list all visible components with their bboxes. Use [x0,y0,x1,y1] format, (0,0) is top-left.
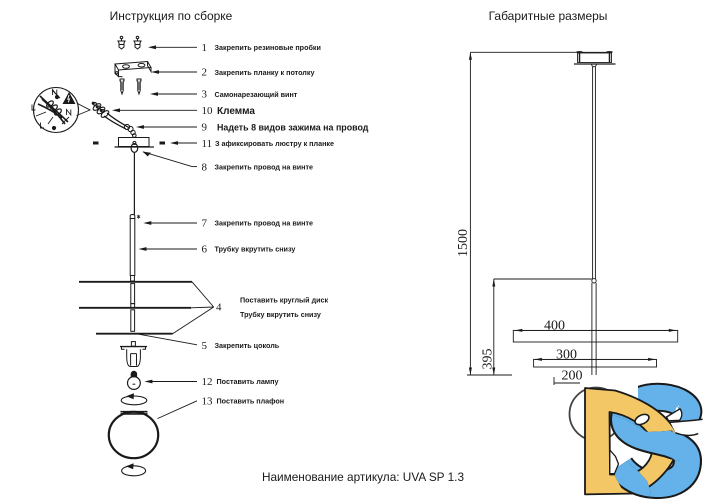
svg-text:395: 395 [481,349,496,370]
svg-text:400: 400 [544,318,565,333]
svg-text:Поставить плафон: Поставить плафон [217,396,285,405]
svg-text:1: 1 [202,42,208,54]
svg-text:Закрепить провод на винте: Закрепить провод на винте [215,219,314,228]
svg-text:Трубку вкрутить снизу: Трубку вкрутить снизу [215,245,296,254]
svg-text:9: 9 [202,122,208,134]
svg-text:Поставить лампу: Поставить лампу [217,377,279,386]
svg-text:5: 5 [202,340,208,352]
svg-text:300: 300 [556,347,577,362]
svg-text:3: 3 [202,89,208,101]
svg-text:8: 8 [202,161,208,173]
svg-text:Закрепить провод на винте: Закрепить провод на винте [215,163,314,172]
svg-text:Закрепить цоколь: Закрепить цоколь [215,341,280,350]
svg-text:2: 2 [202,67,208,79]
svg-text:7: 7 [202,217,208,229]
svg-text:200: 200 [562,369,583,384]
svg-text:Надеть 8 видов зажима на прово: Надеть 8 видов зажима на провод [217,122,369,132]
svg-text:Закрепить резиновые пробки: Закрепить резиновые пробки [215,43,321,52]
svg-text:13: 13 [202,395,214,407]
svg-text:6: 6 [202,243,208,255]
svg-text:10: 10 [202,105,214,117]
svg-text:Габаритные размеры: Габаритные размеры [489,9,608,23]
svg-text:12: 12 [202,376,213,388]
svg-text:Наименование артикула: UVA SP: Наименование артикула: UVA SP 1.3 [262,470,464,484]
svg-text:Инструкция по сборке: Инструкция по сборке [110,9,233,23]
svg-text:11: 11 [202,138,213,150]
svg-text:З афиксировать люстру к планке: З афиксировать люстру к планке [215,139,334,148]
svg-text:Трубку вкрутить снизу: Трубку вкрутить снизу [240,310,321,319]
svg-text:Самонарезающий винт: Самонарезающий винт [215,90,298,99]
svg-text:Клемма: Клемма [217,106,255,117]
svg-text:4: 4 [216,302,222,314]
svg-text:Закрепить планку к потолку: Закрепить планку к потолку [215,68,315,77]
svg-text:Поставить круглый диск: Поставить круглый диск [240,295,329,304]
svg-text:1500: 1500 [456,229,471,257]
